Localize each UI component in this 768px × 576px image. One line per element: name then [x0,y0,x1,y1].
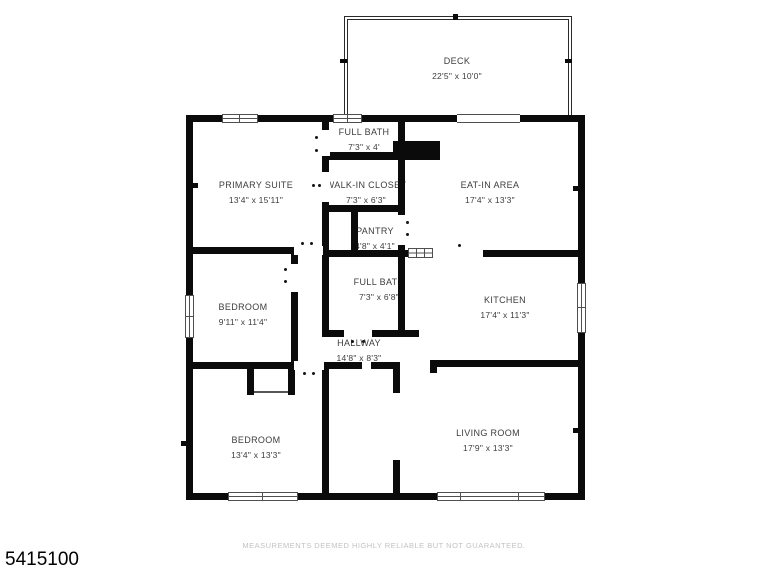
door-opening [362,361,371,370]
window [577,283,586,333]
room-label-living-room: LIVING ROOM 17'9" x 13'3" [456,428,520,453]
door-swing-dot [312,184,315,187]
wall [322,250,408,257]
door-swing-dot [303,372,306,375]
door-opening [397,215,406,245]
window [228,492,298,501]
door-opening [321,130,330,156]
room-name: FULL BATH [354,277,405,287]
listing-id: 5415100 [5,549,79,571]
closet-door [254,391,288,393]
window-mullion [518,492,519,501]
closet-wall [247,369,254,395]
room-label-primary-suite: PRIMARY SUITE 13'4" x 15'11" [219,180,293,205]
door-swing-dot [284,268,287,271]
wall [393,460,400,500]
wall [322,205,405,212]
room-label-deck: DECK 22'5" x 10'0" [432,56,482,81]
window [222,114,258,123]
window-mullion [185,316,194,317]
room-label-bedroom-bottom: BEDROOM 13'4" x 13'3" [231,435,281,460]
window-mullion [424,248,425,258]
door-opening [321,172,330,202]
window-mullion [460,492,461,501]
pass-through [408,248,433,258]
room-dims: 13'4" x 13'3" [231,451,281,460]
room-dims: 17'4" x 11'3" [480,311,529,320]
door-swing-dot [284,280,287,283]
wall-tick [193,183,198,188]
room-name: WALK-IN CLOSET [326,180,407,190]
wall-tick [181,441,186,446]
room-name: PANTRY [355,226,395,236]
room-dims: 7'3" x 6'3" [326,196,407,205]
room-name: KITCHEN [480,295,529,305]
room-name: HALLWAY [337,338,382,348]
room-dims: 17'9" x 13'3" [456,444,520,453]
door-swing-dot [351,340,354,343]
door-opening [294,246,323,255]
deck-post-mark [453,14,458,20]
room-name: BEDROOM [231,435,281,445]
room-label-pantry: PANTRY 4'8" x 4'1" [355,226,395,251]
room-label-eat-in-area: EAT-IN AREA 17'4" x 13'3" [461,180,520,205]
door-opening [344,329,372,338]
door-opening [290,264,299,292]
deck-post-mark [565,59,572,63]
deck-post-mark [340,59,347,63]
door-swing-dot [301,242,304,245]
door-swing-dot [458,244,461,247]
door-swing-dot [315,136,318,139]
window-mullion [262,492,263,501]
room-dims: 7'3" x 6'8" [354,293,405,302]
wall [398,254,405,330]
disclaimer-text: MEASUREMENTS DEEMED HIGHLY RELIABLE BUT … [0,541,768,550]
room-label-full-bath-top: FULL BATH 7'3" x 4' [339,127,390,152]
room-name: FULL BATH [339,127,390,137]
room-label-bedroom-middle: BEDROOM 9'11" x 11'4" [219,302,268,327]
wall [398,122,405,156]
door-swing-dot [315,149,318,152]
wall [430,360,437,373]
window-mullion [239,114,240,123]
room-name: LIVING ROOM [456,428,520,438]
room-dims: 22'5" x 10'0" [432,72,482,81]
wall [393,362,400,393]
wall [322,362,329,500]
room-label-full-bath-middle: FULL BATH 7'3" x 6'8" [354,277,405,302]
room-name: PRIMARY SUITE [219,180,293,190]
door-opening [419,329,438,338]
door-swing-dot [312,372,315,375]
window-mullion [416,248,417,258]
door-opening [294,361,324,370]
wall [329,152,398,160]
room-name: BEDROOM [219,302,268,312]
room-dims: 17'4" x 13'3" [461,196,520,205]
door-swing-dot [318,184,321,187]
room-name: DECK [432,56,482,66]
window [437,492,545,501]
room-name: EAT-IN AREA [461,180,520,190]
window-mullion [347,114,348,123]
wall-tick [573,186,578,191]
wall [430,360,578,367]
room-label-kitchen: KITCHEN 17'4" x 11'3" [480,295,529,320]
wall [483,250,578,257]
room-label-hallway: HALLWAY 14'8" x 8'3" [337,338,382,363]
door-swing-dot [406,233,409,236]
room-dims: 13'4" x 15'11" [219,196,293,205]
door-swing-dot [406,221,409,224]
sliding-door [457,114,520,123]
floorplan-canvas: DECK 22'5" x 10'0" FULL BATH 7'3" x 4' P… [0,0,768,576]
room-dims: 7'3" x 4' [339,143,390,152]
closet-wall [288,369,295,395]
door-swing-dot [362,340,365,343]
wall-tick [573,428,578,433]
window-mullion [577,307,586,308]
door-swing-dot [310,242,313,245]
room-label-walk-in-closet: WALK-IN CLOSET 7'3" x 6'3" [326,180,407,205]
room-dims: 9'11" x 11'4" [219,318,268,327]
